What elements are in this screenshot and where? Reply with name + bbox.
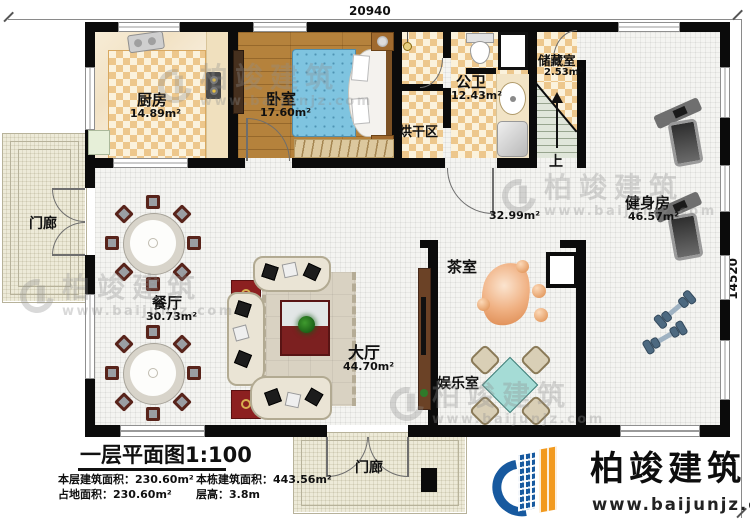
lamp (377, 36, 388, 47)
stat-footprint: 占地面积：230.60m² (58, 489, 172, 500)
stat-floor-area: 本层建筑面积：230.60m² (58, 474, 194, 485)
dining-chair (105, 366, 119, 380)
stat-total-area: 本栋建筑面积：443.56m² (196, 474, 332, 485)
window (85, 67, 95, 130)
tea-stool (477, 298, 490, 311)
sofa-pillow (303, 263, 322, 282)
room-area-kitchen: 14.89m² (130, 108, 181, 119)
watermark-logo-icon (495, 172, 542, 219)
wall (292, 158, 445, 168)
watermark: 柏竣建筑 www.baijunjz.com (20, 274, 235, 318)
room-label-porch-bottom: 门廊 (355, 461, 383, 475)
sofa-pillow (234, 300, 252, 318)
room-area-storage: 2.53m² (544, 68, 583, 78)
company-logo: 柏竣建筑 www.baijunjz.com (492, 444, 742, 520)
top-dimension-line (8, 19, 742, 20)
title-underline (78, 468, 226, 471)
wall (180, 22, 253, 32)
sink-basin (147, 37, 156, 46)
nightstand (371, 32, 394, 51)
watermark-logo-icon (151, 62, 198, 109)
lazy-susan (148, 238, 158, 248)
kitchen-pass-window (113, 158, 188, 168)
treadmill (647, 101, 715, 172)
wall (577, 22, 586, 30)
wall (577, 158, 586, 168)
fridge (88, 130, 110, 155)
shower-stall (498, 32, 528, 70)
bedroom-door-leaf (246, 118, 248, 161)
window (720, 165, 730, 212)
sofa-pillow (282, 262, 299, 279)
window (620, 425, 700, 437)
wall-niche (546, 252, 578, 288)
dining-chair (146, 195, 160, 209)
dining-chair (146, 407, 160, 421)
sofa-pillow (232, 324, 249, 341)
watermark-website: www.baijunjz.com (200, 95, 373, 108)
dining-table-set (98, 318, 208, 428)
tea-stool (534, 308, 548, 322)
wall (720, 300, 730, 340)
window (618, 22, 680, 32)
watermark-logo-icon (383, 380, 430, 427)
room-area-hall: 44.70m² (343, 361, 394, 372)
wall (560, 240, 586, 248)
room-label-hall: 大厅 (348, 345, 380, 361)
stairs-arrow-head (551, 92, 563, 103)
logo-building-blue (518, 453, 535, 512)
room-label-storage: 储藏室 (538, 55, 576, 68)
dining-chair (146, 325, 160, 339)
plan-title: 一层平面图1:100 (80, 445, 252, 466)
sofa-pillow (264, 388, 282, 406)
window (118, 22, 180, 32)
wall (188, 158, 245, 168)
ceiling-lamp (403, 42, 412, 51)
wall (205, 425, 327, 437)
stat-floor-height: 层高：3.8m (196, 489, 260, 500)
watermark: 柏竣建筑 www.baijunjz.com (502, 174, 717, 218)
porch-bottom-door-leaf (407, 437, 409, 477)
wall (720, 118, 730, 165)
sofa-pillow (234, 350, 252, 368)
room-label-bath: 公卫 (456, 75, 486, 90)
porch-pillar (421, 468, 437, 492)
porch-left-door-leaf (52, 254, 85, 256)
lazy-susan (148, 368, 158, 378)
wall (85, 158, 113, 168)
treadmill-screen (673, 106, 688, 119)
ceiling-lamp-cord (407, 32, 408, 42)
sofa (253, 256, 331, 292)
window (720, 67, 730, 118)
wall (443, 88, 451, 128)
bed-headboard (386, 49, 392, 135)
window (720, 255, 730, 300)
wall (443, 32, 451, 58)
wall (528, 22, 537, 168)
treadmill-belt (667, 118, 703, 167)
sofa-pillow (285, 392, 302, 409)
porch-bottom-door-leaf (326, 437, 328, 477)
stairs-up-label: 上 (549, 155, 563, 169)
dining-chair (187, 236, 201, 250)
dining-chair (105, 236, 119, 250)
dining-chair (114, 204, 134, 224)
dim-tick (3, 12, 13, 22)
top-dimension-value: 20940 (349, 4, 391, 18)
watermark-company: 柏竣建筑 (62, 274, 235, 302)
watermark-company: 柏竣建筑 (544, 174, 717, 202)
watermark-website: www.baijunjz.com (62, 305, 235, 318)
room-label-tea: 茶室 (447, 260, 477, 275)
wall (700, 425, 730, 437)
basin-drain (510, 96, 516, 102)
logo-website: www.baijunjz.com (592, 497, 750, 514)
dining-chair (187, 366, 201, 380)
watermark-logo-icon (13, 272, 60, 319)
wash-basin (499, 82, 526, 115)
tea-stool (532, 284, 546, 298)
stairs-arrow-line (556, 102, 558, 148)
wall (720, 22, 730, 67)
wall (85, 22, 95, 67)
watermark: 柏竣建筑 www.baijunjz.com (158, 64, 373, 108)
shower-tray (497, 121, 528, 157)
plant (298, 316, 315, 333)
room-label-porch-left: 门廊 (29, 217, 57, 231)
wall (720, 212, 730, 255)
watermark: 柏竣建筑 www.baijunjz.com (390, 382, 605, 426)
window (720, 340, 730, 400)
bath-corridor-door-leaf (492, 168, 494, 214)
sofa-pillow (261, 263, 279, 281)
floor-plan: 20940 14520 (0, 0, 750, 524)
room-area-bath: 12.43m² (451, 90, 502, 101)
watermark-website: www.baijunjz.com (544, 205, 717, 218)
dining-chair (114, 334, 134, 354)
sofa-pillow (304, 387, 323, 406)
room-label-drying: 烘干区 (399, 126, 438, 139)
sink-basin (134, 39, 143, 48)
logo-building-orange (539, 446, 557, 512)
tv (421, 297, 426, 355)
watermark-website: www.baijunjz.com (432, 413, 605, 426)
bedroom-rug (294, 139, 394, 158)
logo-company-name: 柏竣建筑 (590, 452, 746, 486)
coffee-table (280, 300, 330, 356)
porch-left-door-leaf (52, 188, 85, 190)
watermark-company: 柏竣建筑 (432, 382, 605, 410)
window (253, 22, 307, 32)
watermark-company: 柏竣建筑 (200, 64, 373, 92)
tea-stool (516, 260, 529, 273)
sofa-chaise (250, 376, 332, 420)
